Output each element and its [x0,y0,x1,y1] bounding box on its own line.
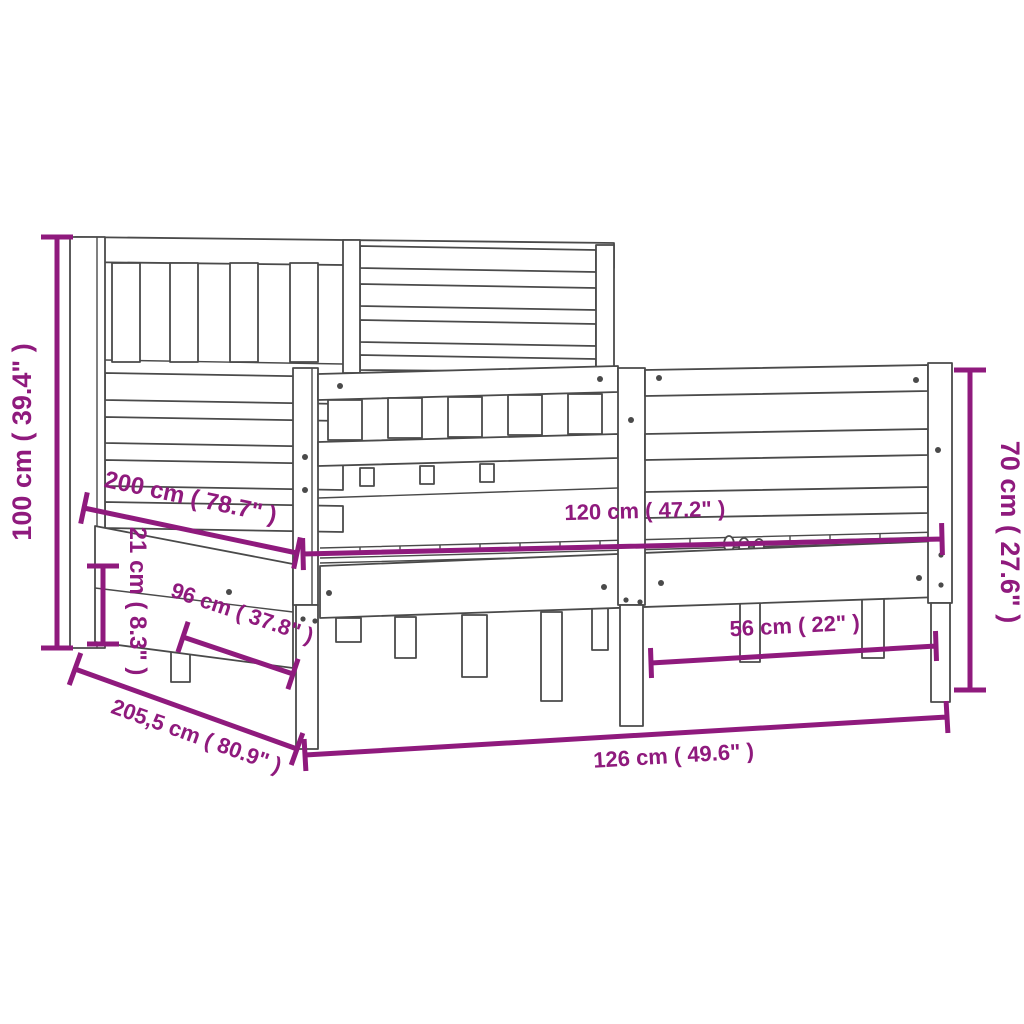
dimension-label: 100 cm ( 39.4" ) [7,343,37,540]
dimension-headboard-height: 100 cm ( 39.4" ) [7,237,73,648]
dimension-label: 70 cm ( 27.6" ) [995,441,1024,623]
dimension-label: 21 cm ( 8.3" ) [124,527,151,676]
screw-icon [601,584,607,590]
footboard-left-post-leg [620,605,643,726]
headboard-vertical-slats [105,263,343,364]
screw-icon [656,375,662,381]
screw-icon [637,599,642,604]
mid-rail-assembly [318,366,618,498]
headboard-boards-right [360,246,596,372]
diagram-stage: 100 cm ( 39.4" ) 200 cm ( 78.7" ) 120 cm… [0,0,1024,1024]
dimension-label: 120 cm ( 47.2" ) [564,496,725,525]
screw-icon [916,575,922,581]
screw-icon [935,447,941,453]
screw-icon [337,383,343,389]
screw-icon [938,582,943,587]
screw-icon [628,417,634,423]
mid-vertical-slats [328,394,602,440]
screw-icon [302,454,308,460]
screw-icon [597,376,603,382]
screw-icon [913,377,919,383]
bed-frame-dimension-diagram: 100 cm ( 39.4" ) 200 cm ( 78.7" ) 120 cm… [0,0,1024,1024]
screw-icon [302,487,308,493]
footboard-boards [645,365,928,518]
footboard-right-post [928,363,952,603]
dimension-footboard-height: 70 cm ( 27.6" ) [954,370,1024,690]
headboard-mid-post [343,240,360,373]
screw-icon [623,597,628,602]
screw-icon [326,590,332,596]
mid-lower-rail [318,434,618,466]
dimension-label: 126 cm ( 49.6" ) [593,738,755,772]
headboard-right-post [596,245,614,372]
footboard-left-post [618,368,645,605]
screw-icon [658,580,664,586]
dimension-under-bed-width: 56 cm ( 22" ) [651,610,937,678]
